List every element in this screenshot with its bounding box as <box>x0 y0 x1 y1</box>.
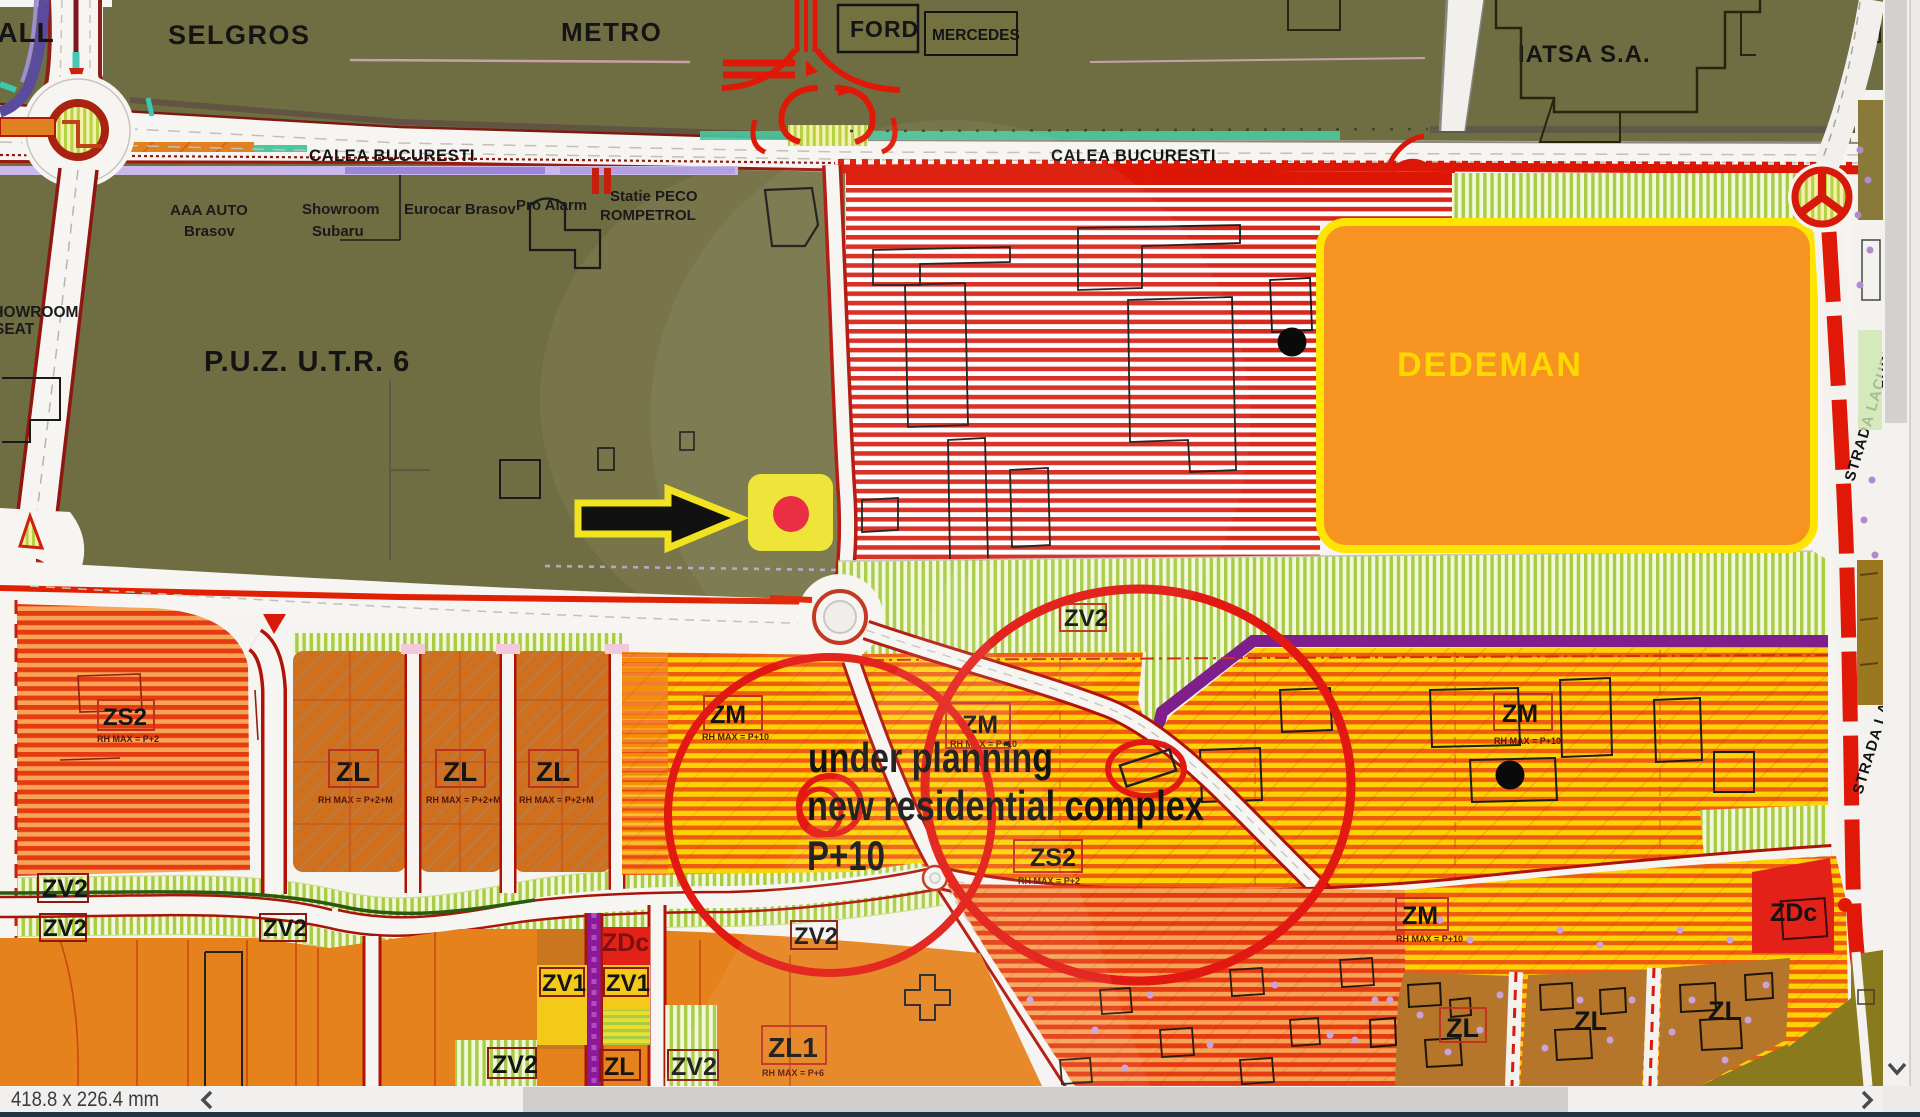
svg-text:Showroom: Showroom <box>302 201 380 218</box>
svg-text:ZL: ZL <box>336 756 370 787</box>
svg-text:SHOWROOM: SHOWROOM <box>0 304 78 321</box>
svg-text:ZV1: ZV1 <box>606 970 650 997</box>
svg-text:Eurocar Brasov: Eurocar Brasov <box>404 201 516 218</box>
svg-text:RH MAX = P+2+M: RH MAX = P+2+M <box>426 795 501 805</box>
svg-text:METRO: METRO <box>561 17 662 47</box>
svg-text:ROMPETROL: ROMPETROL <box>600 207 696 224</box>
svg-text:SELGROS: SELGROS <box>168 20 311 50</box>
svg-text:ZDc: ZDc <box>1770 899 1817 927</box>
svg-text:ZL: ZL <box>604 1053 635 1081</box>
svg-text:SEAT: SEAT <box>0 321 35 338</box>
svg-text:FORD: FORD <box>850 16 919 42</box>
svg-text:RH MAX = P+2: RH MAX = P+2 <box>97 734 159 744</box>
svg-text:P.U.Z. U.T.R. 6: P.U.Z. U.T.R. 6 <box>204 346 410 378</box>
svg-text:RH MAX = P+2+M: RH MAX = P+2+M <box>318 795 393 805</box>
svg-text:RH MAX = P+10: RH MAX = P+10 <box>1396 934 1463 944</box>
svg-text:ZL: ZL <box>1446 1013 1479 1043</box>
svg-text:ZV1: ZV1 <box>542 970 586 997</box>
svg-text:RH MAX = P+2+M: RH MAX = P+2+M <box>519 795 594 805</box>
svg-text:IATSA S.A.: IATSA S.A. <box>1518 41 1651 68</box>
svg-text:ZM: ZM <box>1402 902 1438 930</box>
svg-text:ZV2: ZV2 <box>42 875 88 903</box>
svg-text:Subaru: Subaru <box>312 223 364 240</box>
svg-text:CALEA BUCURESTI: CALEA BUCURESTI <box>309 147 475 165</box>
svg-text:AAA AUTO: AAA AUTO <box>170 202 248 219</box>
svg-text:ZL: ZL <box>536 756 570 787</box>
svg-text:ZDc: ZDc <box>602 929 649 957</box>
svg-text:ZL: ZL <box>1574 1006 1607 1036</box>
svg-text:Brasov: Brasov <box>184 223 236 240</box>
svg-text:MERCEDES: MERCEDES <box>932 27 1020 44</box>
svg-text:ZL: ZL <box>1708 996 1741 1026</box>
svg-text:DEDEMAN: DEDEMAN <box>1397 346 1583 384</box>
svg-text:MALL: MALL <box>0 17 55 48</box>
svg-text:RH MAX = P+10: RH MAX = P+10 <box>702 732 769 742</box>
svg-text:ZS2: ZS2 <box>103 704 147 731</box>
svg-text:ZV2: ZV2 <box>263 915 307 942</box>
svg-text:Statie PECO: Statie PECO <box>610 188 698 205</box>
svg-text:ZV2: ZV2 <box>43 915 87 942</box>
svg-text:418.8 x 226.4 mm: 418.8 x 226.4 mm <box>11 1088 159 1111</box>
svg-text:ZV2: ZV2 <box>492 1051 538 1079</box>
